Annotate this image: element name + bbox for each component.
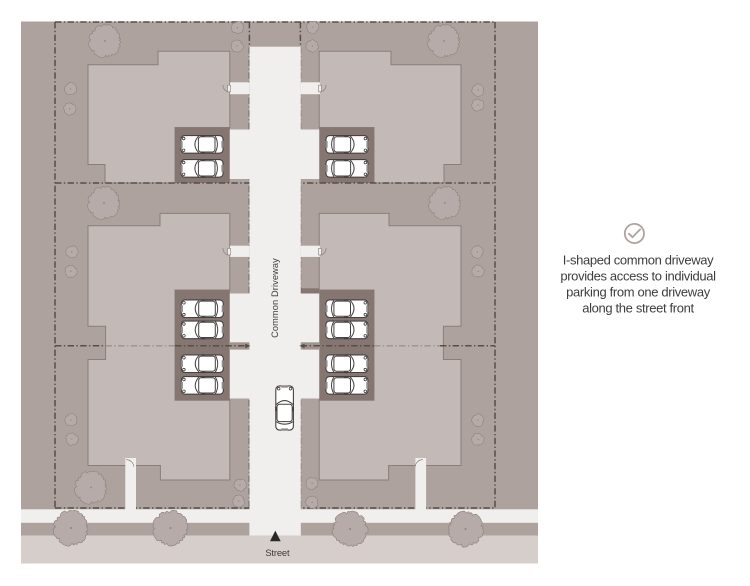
svg-text:Common Driveway: Common Driveway: [270, 258, 280, 338]
svg-text:provides access to individual: provides access to individual: [560, 268, 716, 283]
svg-text:along the street front: along the street front: [582, 300, 694, 315]
svg-text:Street: Street: [265, 547, 290, 558]
svg-text:parking from one driveway: parking from one driveway: [566, 284, 711, 299]
svg-text:I-shaped common driveway: I-shaped common driveway: [563, 252, 714, 267]
